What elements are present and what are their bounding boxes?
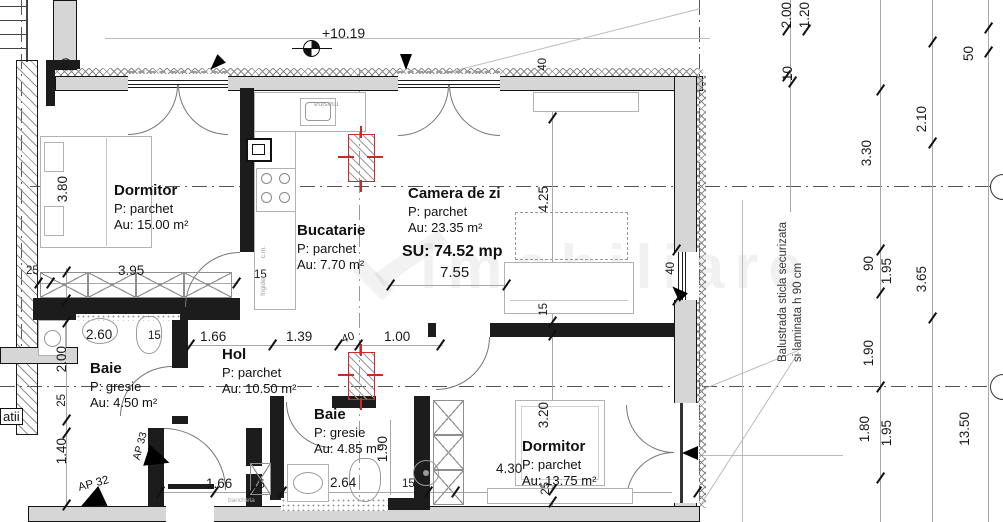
room-floor: P: parchet [297,241,365,257]
cm-label: c.m. [260,246,267,258]
room-name: Dormitor [114,182,188,201]
dim: 4.30 [496,462,522,476]
door-arc-dormitor2 [436,337,490,390]
dim: 1.90 [862,340,876,366]
grid-bubble [990,374,1003,400]
dim: 1.00 [384,330,410,344]
burner [261,192,272,203]
dim: 90 [862,256,876,271]
room-label-dormitor-2: Dormitor P: parchet Au: 13.75 m² [522,438,596,489]
room-label-bucatarie: Bucatarie P: parchet Au: 7.70 m² [297,222,365,273]
pillow [44,142,64,172]
dim: 1.66 [200,330,226,344]
dim: 3.80 [56,176,70,202]
room-area: Au: 23.35 m² [408,220,501,236]
dim: 4.25 [537,186,551,212]
room-name: Baie [314,406,381,425]
column [348,134,375,182]
room-label-camera-de-zi: Camera de zi P: parchet Au: 23.35 m² [408,185,501,236]
dresser [487,488,633,504]
wardrobe [433,400,464,435]
balustrade-note: Balustrada sticla securizata si laminata… [776,222,806,362]
dim: 1.40 [55,438,69,464]
dim-chain [932,0,933,522]
room-area: Au: 7.70 m² [297,257,365,273]
column-mark [367,374,383,376]
left-edge-partial-text: atii [0,408,23,425]
wardrobe [433,435,464,470]
window-leaf-arc [449,85,500,136]
room-area: Au: 4.50 m² [90,395,157,411]
tv-cabinet [533,92,639,112]
dim: 1.66 [206,477,232,491]
dim-total-width: 7.55 [440,265,469,280]
room-floor: P: parchet [114,201,188,217]
party-wall-hatch [16,60,38,435]
level-line [105,38,710,39]
grid-bubble [990,174,1003,200]
level-marker-cross [292,48,332,49]
window-dashed-line [398,71,500,73]
wall-dormitor-kitchen [240,88,254,252]
room-name: Baie [90,360,157,379]
burner [261,173,272,184]
column-mark [360,344,362,356]
column-mark [367,156,383,158]
room-name: Hol [222,346,296,365]
dim: 25 [26,266,39,278]
wall-baie2-bottom [386,498,430,510]
dim-chain [988,0,989,522]
room-floor: P: gresie [90,379,157,395]
balustrade-note-line1: Balustrada sticla securizata [776,222,791,362]
dim: 1.39 [286,330,312,344]
stair-tread [0,48,26,49]
wall-opening [166,504,214,522]
dim: 15 [148,331,161,343]
window-leaf-arc [128,85,178,135]
column-mark [338,156,354,158]
sofa-line [510,300,628,301]
sofa [504,262,634,314]
dim: 15 [402,479,415,491]
french-door-arc [626,405,674,453]
dim: 13.50 [958,412,972,446]
shower-head-center [423,470,429,476]
column-mark [338,374,354,376]
wall-corner [46,60,55,106]
dim: 1.95 [880,420,894,446]
sink-basin [293,472,323,494]
balcony-arrow-icon [682,446,698,460]
balustrade-note-line2: si laminata h 90 cm [791,222,806,362]
dim: 2.10 [915,106,929,132]
window-leaf-arc [178,85,228,135]
washer-label: masina [314,100,338,109]
pillow [44,206,64,236]
balcony-leader [698,455,843,456]
stair-tread [0,20,26,21]
dim: 2.00 [780,2,794,28]
dim: 3.20 [537,402,551,428]
dim: 3.30 [860,140,874,166]
dim: 40 [62,58,74,71]
column [348,352,375,400]
door-opening [436,323,490,337]
french-door-arc [626,452,674,500]
dim: 40 [341,331,357,346]
column-mark [360,126,362,138]
dim: 50 [962,46,976,61]
leader-line [432,8,700,77]
dim: 2.00 [55,346,69,372]
dim: 1.90 [376,436,390,462]
dim: 3.95 [118,264,144,278]
dim: 1.95 [880,258,894,284]
dim-chain [790,0,791,212]
room-area: Au: 13.75 m² [522,473,596,489]
washing-machine-door [44,330,61,347]
entrance-arrow-icon [400,54,412,70]
wall-baie-hol [172,320,188,368]
dim: 2.64 [330,476,356,490]
floor-plan: imobiliare [0,0,1003,522]
dim: 3.65 [915,266,929,292]
room-floor: P: parchet [522,457,596,473]
room-area: Au: 15.00 m² [114,217,188,233]
burner [279,173,290,184]
dim: 1.80 [858,416,872,442]
room-name: Bucatarie [297,222,365,241]
room-name: Dormitor [522,438,596,457]
dim: 2.60 [86,328,112,342]
dim: 25 [57,394,69,407]
bed-line [106,138,107,246]
room-floor: P: gresie [314,425,381,441]
wall-baie2-left [270,396,284,500]
room-label-baie-2: Baie P: gresie Au: 4.85 m² [314,406,381,457]
room-name: Camera de zi [408,185,501,204]
column-mark [360,180,362,192]
dim: 15 [539,303,551,316]
dim: 40 [538,58,550,71]
stair-tread [0,6,26,7]
wardrobe [184,272,232,298]
bench-label: bancheta [228,497,255,504]
balcony-line [742,200,743,522]
wall-baie-hol [172,416,188,424]
room-label-baie-1: Baie P: gresie Au: 4.50 m² [90,360,157,411]
total-area-label: SU: 74.52 mp [402,243,502,261]
stair-tread [0,34,26,35]
room-floor: P: parchet [222,365,296,381]
window-leaf-arc [398,85,449,136]
dim-level: +10.19 [322,26,365,40]
room-label-hol: Hol P: parchet Au: 10.50 m² [222,346,296,397]
wall-vestibule-right [246,428,262,466]
room-floor: P: parchet [408,204,501,220]
burner [279,192,290,203]
dim-line [390,420,391,495]
fridge-label: frigider [260,276,267,296]
balcony-diagonal [700,352,799,506]
room-area: Au: 10.50 m² [222,381,296,397]
dim: 40 [666,262,678,275]
oven-inner [252,144,265,155]
room-area: Au: 4.85 m² [314,441,381,457]
stair-rail [26,0,28,62]
room-label-dormitor-1: Dormitor P: parchet Au: 15.00 m² [114,182,188,233]
dim-line [388,285,508,286]
table-dashed [515,212,628,260]
